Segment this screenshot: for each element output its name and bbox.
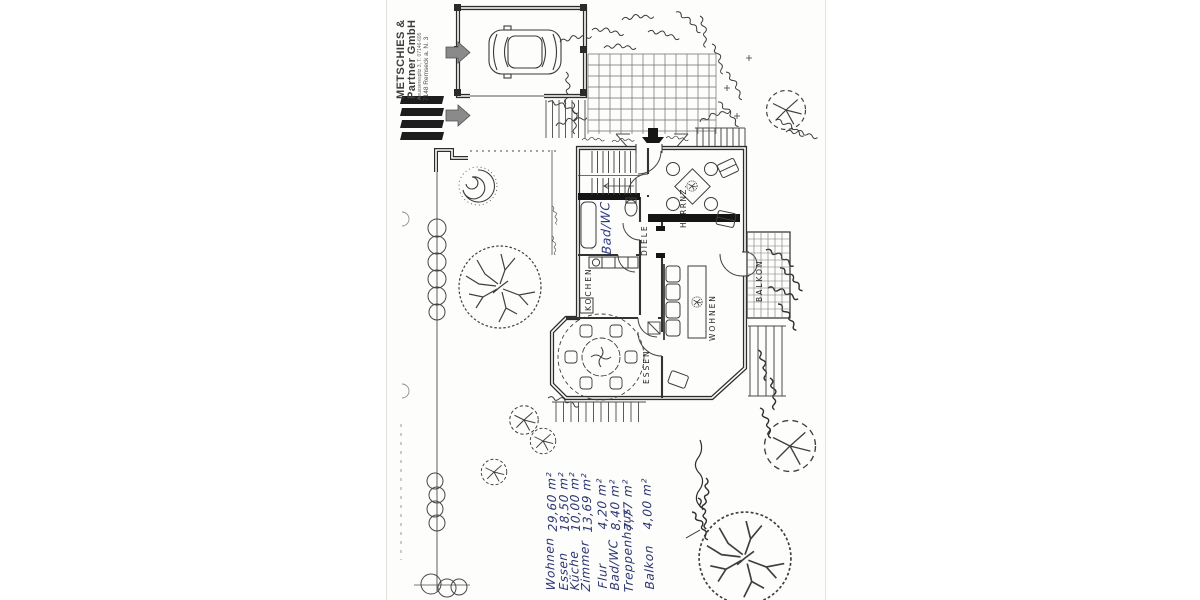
- cloud-tree: [481, 459, 507, 485]
- room-label-wohnen: WOHNEN: [708, 294, 717, 341]
- punch-hole-icon: [402, 384, 409, 398]
- area-list-value: 7,77 m²: [620, 479, 636, 531]
- terrace-paving-grid: [588, 54, 716, 134]
- room-label-balkon: BALKON: [755, 260, 764, 302]
- area-list-label: Zimmer: [577, 540, 593, 592]
- garage: [454, 4, 587, 100]
- property-boundary: [414, 150, 556, 592]
- scanned-floor-plan-page: METSCHIES & Partner GmbH Aeusserespltz 3…: [0, 0, 1200, 600]
- room-label-diele: DIELE: [640, 224, 649, 256]
- car-icon: [489, 26, 561, 78]
- balcony: [747, 232, 790, 318]
- spiral-tree: [459, 167, 497, 205]
- driveway-paving: [546, 100, 585, 138]
- metschies-logo-icon: [400, 96, 444, 140]
- punch-hole-icon: [402, 212, 409, 226]
- room-label-kochen: KOCHEN: [584, 267, 593, 311]
- cloud-tree: [510, 406, 539, 435]
- trellis: [695, 128, 745, 146]
- large-tree: [699, 512, 791, 600]
- room-label-essen: ESSEN: [642, 349, 651, 384]
- stamp-city: 7148 Remseck a. N. 3: [423, 37, 430, 101]
- large-tree: [459, 246, 541, 328]
- page-edge-marks: [401, 212, 409, 560]
- area-list-value: 13,69 m²: [579, 473, 595, 533]
- area-list-label: Balkon: [641, 545, 657, 590]
- room-label-bad-wc-handwritten: Bad/WC: [597, 201, 614, 255]
- cloud-tree: [530, 428, 556, 454]
- area-list-value: 4,00 m²: [639, 478, 655, 530]
- load-bearing-wall: [648, 214, 740, 222]
- room-label-herrenzimmer: HERRNZ.: [679, 184, 688, 228]
- cloud-tree: [765, 421, 816, 472]
- staircase: [578, 151, 640, 195]
- trees: [459, 91, 816, 600]
- garden-steps: [552, 150, 646, 422]
- living-room-furniture: [664, 264, 706, 389]
- arrow-right-icon: [446, 105, 470, 126]
- pergola: [748, 326, 786, 396]
- arrow-right-icon: [446, 42, 470, 63]
